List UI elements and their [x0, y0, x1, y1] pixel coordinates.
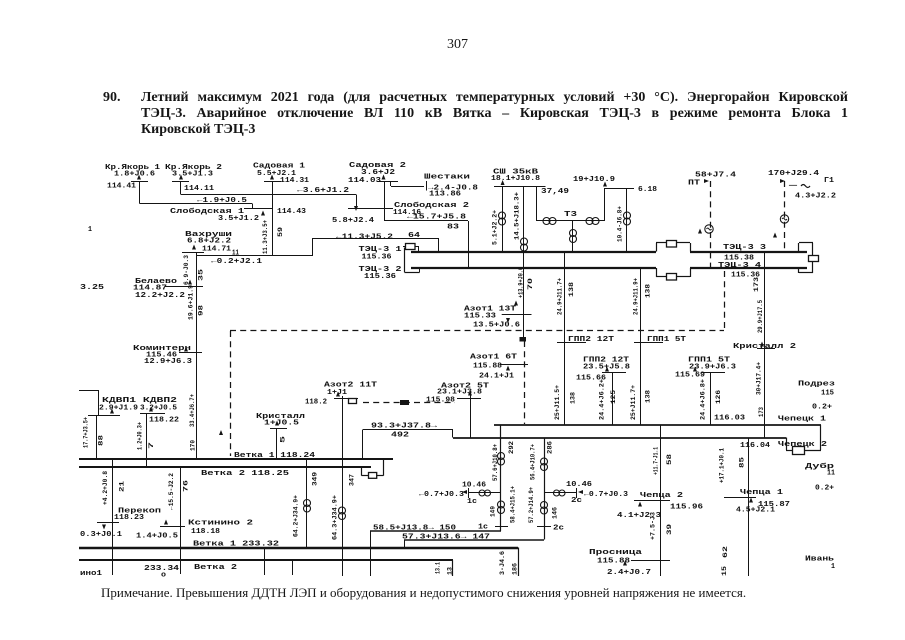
svg-text:146: 146	[552, 507, 559, 519]
svg-text:11.3+J3.5+: 11.3+J3.5+	[262, 220, 269, 254]
svg-text:85: 85	[739, 457, 746, 468]
svg-text:10.4-J6.8+: 10.4-J6.8+	[617, 206, 624, 242]
svg-text:2с: 2с	[571, 497, 582, 505]
svg-text:11: 11	[827, 470, 835, 478]
svg-text:115.98: 115.98	[426, 397, 455, 405]
svg-text:286: 286	[547, 441, 554, 454]
svg-text:19+J10.9: 19+J10.9	[573, 176, 615, 184]
svg-text:24.4+J6.2+: 24.4+J6.2+	[599, 379, 606, 420]
svg-text:11: 11	[232, 250, 239, 258]
svg-text:138: 138	[570, 392, 577, 404]
svg-text:88: 88	[98, 435, 105, 446]
svg-text:Ветка 2 118.25: Ветка 2 118.25	[201, 470, 289, 478]
svg-text:115: 115	[821, 390, 834, 398]
svg-text:57.2+J14.9+: 57.2+J14.9+	[528, 487, 535, 523]
svg-text:118.22: 118.22	[149, 417, 179, 425]
svg-text:30+J17.4+: 30+J17.4+	[756, 362, 763, 395]
svg-text:3-J4.6: 3-J4.6	[499, 551, 506, 575]
svg-text:Чепца 2: Чепца 2	[640, 492, 683, 500]
svg-text:4.5+J2.1: 4.5+J2.1	[736, 507, 775, 515]
svg-text:1.8+J0.6: 1.8+J0.6	[114, 171, 155, 179]
svg-text:1+J1: 1+J1	[327, 389, 347, 397]
svg-text:6.8+J2.2: 6.8+J2.2	[187, 238, 231, 246]
svg-text:ГПП2 12Т: ГПП2 12Т	[568, 336, 614, 344]
svg-text:Азот1 6Т: Азот1 6Т	[470, 354, 517, 362]
svg-text:25+J11.5+: 25+J11.5+	[554, 385, 561, 420]
svg-text:35: 35	[198, 269, 205, 281]
svg-text:←15.5-J2.2: ←15.5-J2.2	[168, 473, 175, 510]
svg-text:1.4+J0.5: 1.4+J0.5	[136, 533, 178, 541]
svg-text:292: 292	[508, 441, 515, 454]
svg-text:64.2+J34.9+: 64.2+J34.9+	[293, 495, 300, 537]
svg-text:23.1+J3.8: 23.1+J3.8	[437, 389, 482, 397]
svg-text:1: 1	[831, 563, 835, 571]
svg-text:Г1: Г1	[824, 177, 834, 185]
svg-text:Т3: Т3	[564, 211, 577, 219]
svg-text:12.9+J6.3: 12.9+J6.3	[144, 358, 192, 366]
svg-text:10.46: 10.46	[462, 482, 486, 490]
svg-text:170: 170	[190, 440, 197, 451]
svg-text:83: 83	[447, 224, 459, 232]
svg-text:+17.1+J0.1: +17.1+J0.1	[719, 448, 726, 483]
svg-text:58.5+J13.8→ 150: 58.5+J13.8→ 150	[373, 525, 456, 533]
svg-text:12.2+J2.2: 12.2+J2.2	[135, 292, 185, 300]
svg-text:←0.7+J0.3: ←0.7+J0.3	[584, 491, 628, 499]
svg-text:126: 126	[715, 390, 722, 404]
svg-text:115.88: 115.88	[473, 363, 502, 371]
svg-text:23.9+J6.3: 23.9+J6.3	[689, 364, 736, 372]
svg-text:3.6+J2: 3.6+J2	[361, 169, 395, 177]
svg-text:24.4+J6.8+: 24.4+J6.8+	[700, 379, 707, 420]
svg-text:115.69: 115.69	[675, 372, 705, 380]
svg-text:2.4+J0.7: 2.4+J0.7	[607, 569, 651, 577]
svg-text:17.7+J3.5+: 17.7+J3.5+	[83, 417, 90, 448]
svg-text:←15.7+J5.8: ←15.7+J5.8	[407, 214, 466, 222]
svg-text:113.86: 113.86	[429, 191, 461, 199]
svg-text:13.1: 13.1	[435, 562, 442, 574]
svg-text:349: 349	[312, 472, 319, 486]
svg-text:14.5+J18.3+: 14.5+J18.3+	[514, 192, 521, 240]
svg-text:3.5+J1.2: 3.5+J1.2	[218, 215, 259, 223]
svg-text:115.88: 115.88	[597, 558, 630, 566]
svg-text:Чепецк 1: Чепецк 1	[778, 416, 826, 424]
svg-text:0.3+J0.1: 0.3+J0.1	[80, 531, 122, 539]
svg-text:7: 7	[148, 442, 155, 449]
svg-text:1.2+J0.3+: 1.2+J0.3+	[137, 422, 144, 450]
svg-text:←0.2+J2.1: ←0.2+J2.1	[211, 258, 262, 266]
svg-text:138: 138	[645, 284, 652, 298]
svg-text:Ветка 1 118.24: Ветка 1 118.24	[234, 452, 315, 460]
svg-text:21: 21	[119, 481, 126, 492]
svg-text:64.3+J34.9+: 64.3+J34.9+	[332, 495, 339, 540]
svg-text:114.43: 114.43	[277, 208, 306, 216]
svg-text:114.41: 114.41	[107, 183, 136, 191]
svg-text:116.04: 116.04	[740, 442, 770, 450]
svg-text:3.5+J1.3: 3.5+J1.3	[172, 171, 213, 179]
svg-text:33.4+J6.7+: 33.4+J6.7+	[189, 394, 196, 427]
svg-text:70: 70	[527, 278, 534, 290]
svg-text:57.3+J13.6→ 147: 57.3+J13.6→ 147	[402, 534, 490, 542]
svg-text:ГПП1 5Т: ГПП1 5Т	[647, 336, 686, 344]
svg-text:Ивань: Ивань	[805, 556, 834, 564]
svg-text:59: 59	[277, 227, 284, 237]
svg-text:←0.7+J0.3: ←0.7+J0.3	[419, 491, 464, 499]
svg-text:о: о	[161, 572, 166, 580]
svg-text:58: 58	[666, 454, 673, 465]
svg-text:13.5+J0.6: 13.5+J0.6	[473, 322, 520, 330]
svg-text:149: 149	[490, 506, 497, 517]
svg-text:170+J29.4: 170+J29.4	[768, 170, 819, 178]
svg-text:Ветка 2: Ветка 2	[194, 564, 237, 572]
svg-text:0.2+: 0.2+	[815, 485, 834, 493]
svg-text:Просница: Просница	[589, 549, 643, 557]
svg-text:4.3+J2.2: 4.3+J2.2	[795, 193, 836, 201]
svg-text:Чепецк 2: Чепецк 2	[778, 441, 827, 449]
svg-text:98: 98	[198, 305, 205, 316]
svg-text:57.6+J10.8+: 57.6+J10.8+	[492, 444, 499, 481]
svg-text:ино1: ино1	[80, 570, 102, 578]
svg-text:114.03: 114.03	[348, 177, 381, 185]
svg-text:←1.9+J0.5: ←1.9+J0.5	[197, 197, 247, 205]
svg-text:5.8+J2.4: 5.8+J2.4	[332, 217, 374, 225]
svg-text:2.9+J1.9: 2.9+J1.9	[99, 405, 138, 413]
svg-text:62: 62	[722, 546, 729, 558]
svg-text:+13.9+J0.6: +13.9+J0.6	[518, 267, 525, 298]
svg-text:1с: 1с	[478, 524, 488, 532]
svg-text:116.03: 116.03	[714, 415, 745, 423]
svg-text:Кстинино 2: Кстинино 2	[188, 520, 253, 528]
svg-text:3.25: 3.25	[80, 284, 104, 292]
svg-text:29.9+J17.5: 29.9+J17.5	[757, 300, 764, 333]
svg-text:6.9-J0.3: 6.9-J0.3	[183, 255, 190, 285]
svg-text:125: 125	[610, 390, 617, 404]
svg-text:ПТ: ПТ	[688, 180, 700, 188]
svg-text:6.18: 6.18	[638, 186, 657, 194]
svg-text:Кристалл 2: Кристалл 2	[733, 343, 796, 351]
svg-text:ТЭЦ-3 3: ТЭЦ-3 3	[723, 244, 766, 252]
svg-text:23.5+J5.8: 23.5+J5.8	[583, 364, 630, 372]
svg-text:492: 492	[391, 432, 409, 440]
svg-text:24.9+J11.7+: 24.9+J11.7+	[557, 278, 564, 315]
svg-text:56.4+J10.7+: 56.4+J10.7+	[530, 444, 537, 480]
svg-text:138: 138	[645, 390, 652, 403]
svg-text:118.18: 118.18	[191, 528, 220, 536]
svg-text:3.2+J0.5: 3.2+J0.5	[140, 405, 177, 413]
svg-text:347: 347	[349, 474, 356, 486]
svg-text:114.11: 114.11	[184, 185, 214, 193]
svg-text:186: 186	[512, 563, 519, 575]
svg-text:5: 5	[280, 436, 287, 443]
svg-text:1+J0.5: 1+J0.5	[264, 420, 299, 428]
svg-text:5.1+J2.2+: 5.1+J2.2+	[492, 210, 499, 245]
svg-text:58.4+J15.1+: 58.4+J15.1+	[510, 486, 517, 523]
svg-text:Шестаки: Шестаки	[424, 174, 470, 182]
svg-text:173: 173	[758, 407, 765, 417]
svg-text:115.96: 115.96	[670, 504, 703, 512]
svg-text:0.2+: 0.2+	[812, 404, 832, 412]
svg-text:39: 39	[666, 524, 673, 535]
svg-text:24.9+J11.9+: 24.9+J11.9+	[633, 278, 640, 315]
svg-text:Ветка 1 233.32: Ветка 1 233.32	[193, 541, 279, 549]
svg-text:37,49: 37,49	[541, 188, 569, 196]
svg-text:2с: 2с	[553, 525, 564, 533]
svg-text:115.33: 115.33	[464, 313, 496, 321]
svg-text:13: 13	[447, 567, 454, 575]
svg-text:1: 1	[88, 226, 92, 234]
svg-text:25+J11.7+: 25+J11.7+	[630, 385, 637, 420]
svg-text:18.1+J10.8: 18.1+J10.8	[491, 175, 540, 183]
svg-text:118.2: 118.2	[305, 399, 327, 407]
svg-text:+11.7-J1.1: +11.7-J1.1	[653, 447, 660, 475]
svg-text:+7.5-J3: +7.5-J3	[650, 512, 657, 540]
svg-text:ТЭЦ-3 4: ТЭЦ-3 4	[718, 262, 761, 270]
svg-text:15: 15	[721, 566, 728, 576]
svg-text:115.36: 115.36	[364, 273, 396, 281]
svg-text:114.31: 114.31	[280, 177, 309, 185]
svg-text:Чепца 1: Чепца 1	[740, 489, 783, 497]
svg-text:—: —	[787, 182, 798, 190]
svg-text:93.3+J37.8→: 93.3+J37.8→	[371, 423, 438, 431]
svg-text:64: 64	[408, 232, 420, 240]
svg-text:+4.2+J0.8: +4.2+J0.8	[102, 471, 109, 505]
svg-text:115.36: 115.36	[362, 254, 392, 262]
svg-text:138: 138	[568, 282, 575, 297]
svg-text:58+J7.4: 58+J7.4	[695, 172, 736, 180]
svg-text:19.6+J1.9: 19.6+J1.9	[188, 285, 195, 320]
svg-text:1с: 1с	[467, 498, 477, 506]
svg-text:←11.3+J5.2: ←11.3+J5.2	[336, 234, 393, 242]
svg-text:76: 76	[183, 480, 190, 492]
svg-text:Подрез: Подрез	[798, 381, 835, 389]
svg-text:←3.6+J1.2: ←3.6+J1.2	[297, 187, 349, 195]
svg-text:24.1+J1: 24.1+J1	[479, 373, 514, 381]
svg-text:114.71: 114.71	[202, 246, 231, 254]
svg-text:10.46: 10.46	[566, 481, 592, 489]
svg-text:118.23: 118.23	[114, 514, 144, 522]
svg-text:173: 173	[753, 277, 760, 292]
